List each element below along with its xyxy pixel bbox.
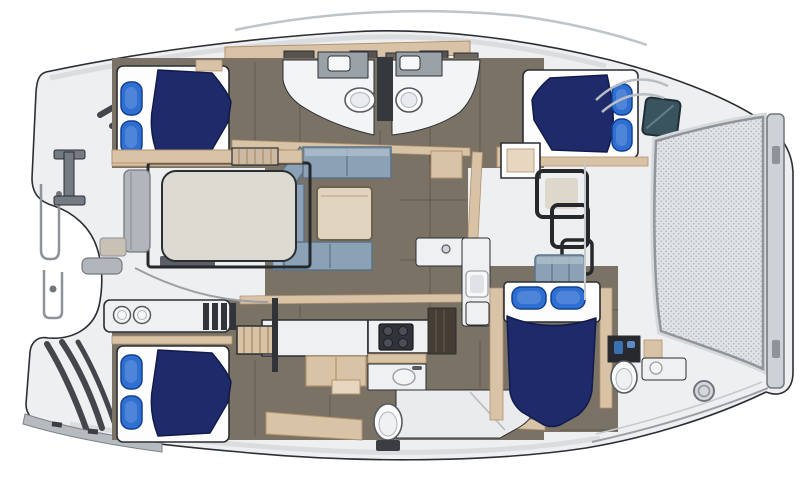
cabin-bottom-left: [112, 336, 232, 442]
basin: [400, 56, 420, 70]
pillow: [612, 119, 632, 151]
pillow: [551, 287, 585, 309]
cabinet-dark: [608, 336, 640, 362]
floor-plan-canvas: [0, 0, 810, 500]
counter-box: [466, 302, 489, 325]
toilet-icon: [345, 88, 375, 112]
trampoline-mesh: [654, 117, 763, 369]
basin: [328, 56, 350, 71]
basin-counter: [642, 358, 686, 380]
locker: [196, 60, 222, 71]
hull-steps: [237, 326, 277, 354]
basin: [650, 362, 662, 374]
bulkhead: [272, 298, 278, 372]
berth-duvet: [507, 316, 596, 427]
galley-cabinet-small: [332, 380, 360, 394]
corridor: [377, 57, 393, 121]
cockpit-bench: [124, 170, 150, 252]
toilet-icon: [396, 88, 422, 112]
pillow: [512, 287, 546, 309]
fridge: [501, 143, 540, 178]
faucet: [442, 245, 450, 253]
hatch-roller: [232, 148, 278, 165]
sun-pad: [162, 171, 296, 261]
round-basin: [114, 307, 131, 324]
pillow: [121, 121, 142, 154]
shelf: [644, 340, 662, 360]
floor-plan-stage: [0, 0, 810, 500]
toilet-icon: [611, 361, 637, 393]
berth-shelf: [112, 336, 232, 344]
headstay-bar: [767, 114, 784, 388]
round-basin: [134, 307, 151, 324]
salon-table: [317, 187, 372, 240]
faucet: [412, 366, 422, 370]
nav-cabinet: [431, 151, 462, 178]
toilet-icon: [374, 404, 402, 451]
cockpit-bench-small: [82, 258, 122, 274]
wardrobe-strip: [490, 288, 503, 420]
pillow: [121, 82, 142, 115]
pillow: [121, 396, 142, 429]
pillow: [121, 355, 142, 389]
sink-basin: [393, 369, 415, 385]
deck-hatch: [694, 381, 714, 401]
stern-rail-bottom: [44, 270, 62, 318]
side-table: [100, 238, 126, 256]
tall-cabinet: [428, 308, 456, 354]
stove-icon: [379, 324, 413, 350]
